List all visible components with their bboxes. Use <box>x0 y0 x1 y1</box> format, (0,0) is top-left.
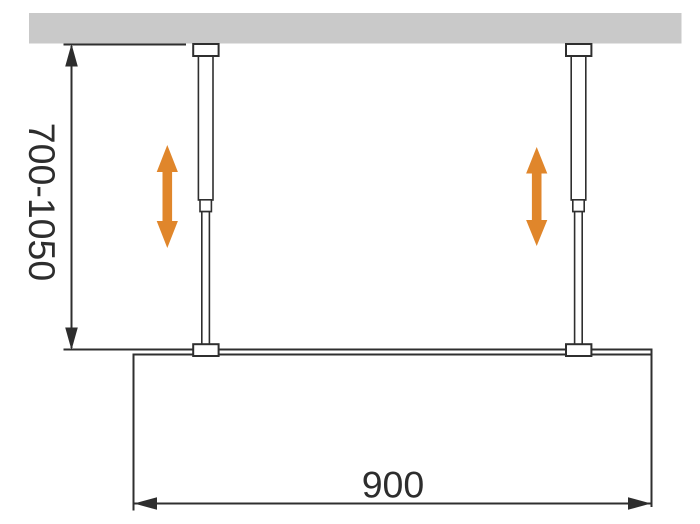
svg-text:700-1050: 700-1050 <box>21 123 63 281</box>
svg-text:900: 900 <box>362 464 425 506</box>
